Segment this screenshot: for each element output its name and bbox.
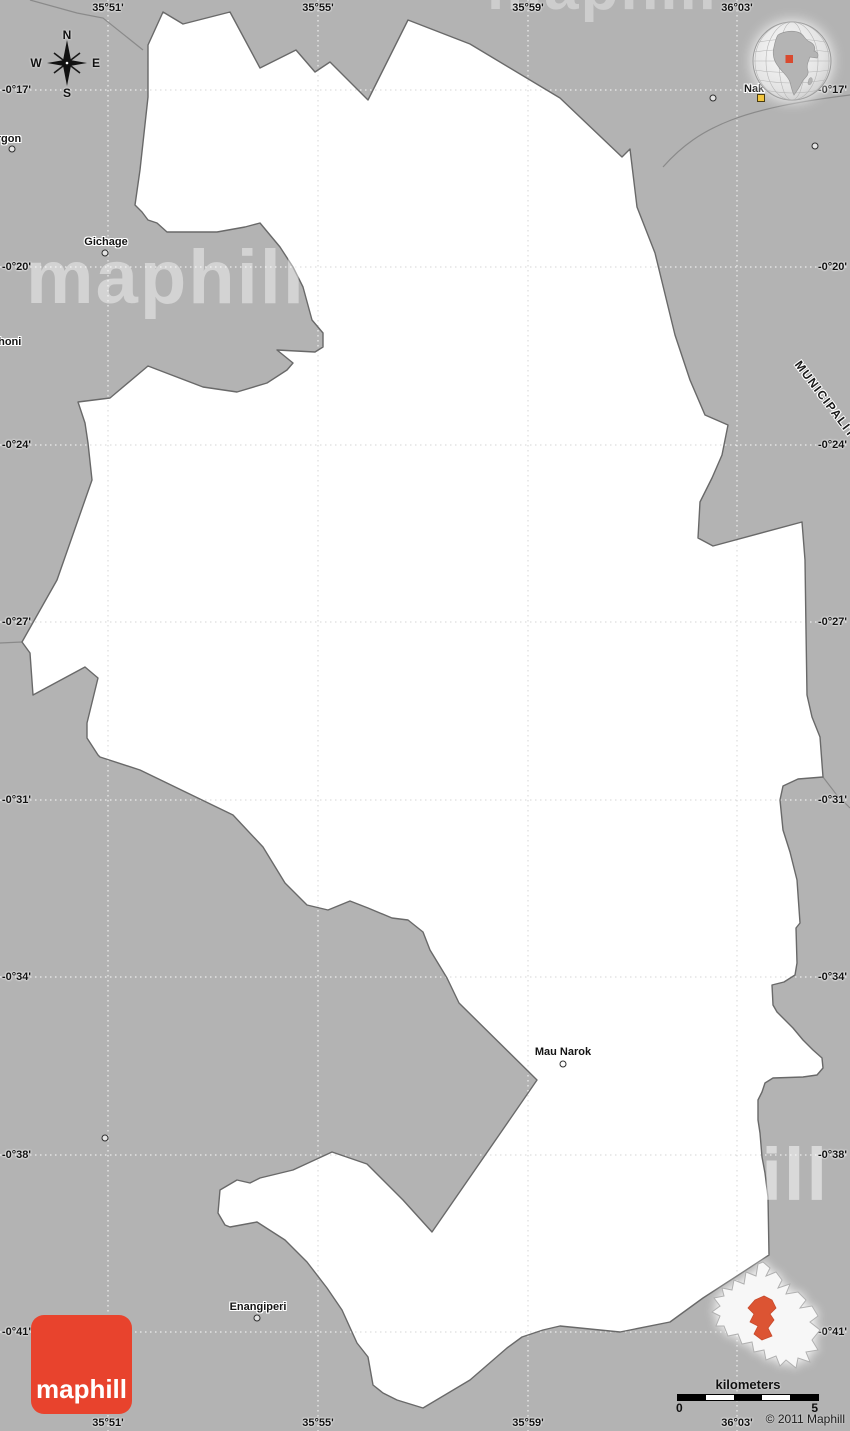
lat-label-right: -0°31' (818, 794, 847, 806)
place-label-enangiperi: Enangiperi (230, 1301, 287, 1313)
scale-bar-end: 5 (811, 1401, 818, 1415)
place-marker (812, 143, 819, 150)
lat-label-left: -0°17' (2, 84, 31, 96)
lon-label-top: 35°59' (512, 2, 544, 14)
nakuru-city-marker (757, 94, 765, 102)
place-marker (102, 250, 109, 257)
lon-label-bottom: 35°55' (302, 1417, 334, 1429)
place-marker (9, 146, 16, 153)
lon-label-top: 35°55' (302, 2, 334, 14)
place-label-shoni: shoni (0, 336, 21, 348)
scale-bar-start: 0 (676, 1401, 683, 1415)
lat-label-right: -0°34' (818, 971, 847, 983)
globe-location-highlight (786, 55, 794, 63)
inset-locator-map (700, 1248, 840, 1380)
lat-label-right: -0°27' (818, 616, 847, 628)
lon-label-bottom: 36°03' (721, 1417, 753, 1429)
lon-label-bottom: 35°59' (512, 1417, 544, 1429)
place-label-urgon: urgon (0, 133, 21, 145)
lat-label-right: -0°38' (818, 1149, 847, 1161)
compass-star-icon (47, 40, 87, 86)
compass-west-label: W (30, 56, 42, 70)
scale-bar: kilometers 0 5 (676, 1377, 820, 1414)
lat-label-left: -0°31' (2, 794, 31, 806)
compass-east-label: E (92, 56, 100, 70)
lon-label-top: 36°03' (721, 2, 753, 14)
maphill-logo-text: maphill (36, 1374, 127, 1414)
place-marker (102, 1135, 109, 1142)
lat-label-left: -0°24' (2, 439, 31, 451)
place-marker (710, 95, 717, 102)
lon-label-bottom: 35°51' (92, 1417, 124, 1429)
lat-label-left: -0°41' (2, 1326, 31, 1338)
map-page: { "coordinates": { "lon_labels": ["35°51… (0, 0, 850, 1431)
base-map (0, 0, 850, 1431)
scale-bar-graphic (677, 1394, 819, 1401)
maphill-logo: maphill (31, 1315, 132, 1414)
scale-bar-title: kilometers (676, 1377, 820, 1392)
compass-south-label: S (63, 86, 71, 100)
lat-label-right: -0°20' (818, 261, 847, 273)
compass-rose: N S W E (28, 26, 108, 106)
lat-label-left: -0°34' (2, 971, 31, 983)
place-marker (254, 1315, 261, 1322)
place-label-gichage: Gichage (84, 236, 127, 248)
compass-north-label: N (63, 28, 72, 42)
lat-label-left: -0°20' (2, 261, 31, 273)
place-marker (560, 1061, 567, 1068)
lat-label-left: -0°38' (2, 1149, 31, 1161)
lat-label-left: -0°27' (2, 616, 31, 628)
lon-label-top: 35°51' (92, 2, 124, 14)
copyright-notice: © 2011 Maphill (766, 1412, 845, 1426)
lat-label-right: -0°24' (818, 439, 847, 451)
place-label-mau-narok: Mau Narok (535, 1046, 591, 1058)
